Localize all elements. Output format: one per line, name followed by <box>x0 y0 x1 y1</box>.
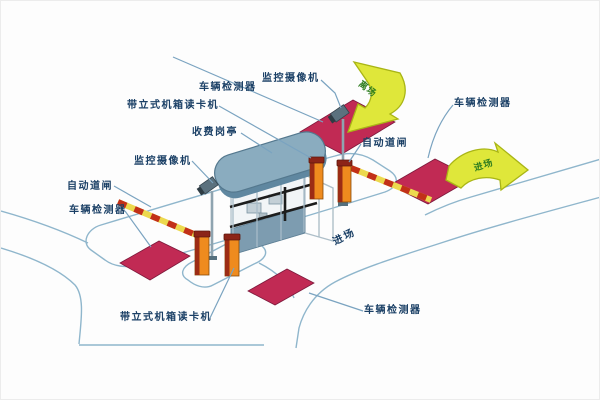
leader-card-reader-bottom <box>210 268 234 318</box>
label-camera-exit-lane: 监控摄像机 <box>262 73 320 85</box>
entry-direction-arrow: 进场 <box>446 143 528 190</box>
detector-pad-entry-left <box>120 241 190 280</box>
road-left-lower <box>1 248 82 344</box>
detector-pad-entry-approach <box>248 269 314 305</box>
machine-entry-card-reader <box>224 234 240 276</box>
leader-vehicle-detector-right <box>428 105 453 158</box>
diagram-canvas: 离场 进场 进场 车辆检测器 监控摄像机 带立式机箱读卡机 收费岗亭 监控摄像机… <box>0 0 600 400</box>
label-card-reader-exit-lane: 带立式机箱读卡机 <box>127 100 219 112</box>
label-vehicle-detector-exit-lane: 车辆检测器 <box>199 82 257 94</box>
label-camera-entry-lane: 监控摄像机 <box>134 156 192 168</box>
road-entry-curve <box>296 197 600 348</box>
label-vehicle-detector-entry-right: 车辆检测器 <box>454 98 512 110</box>
leader-vehicle-detector-bottom <box>309 293 363 311</box>
label-barrier-entry-lane: 自动道闸 <box>67 181 113 193</box>
parking-system-diagram: 离场 进场 进场 <box>1 1 600 400</box>
label-vehicle-detector-entry-left: 车辆检测器 <box>69 205 127 217</box>
label-toll-booth: 收费岗亭 <box>192 127 238 139</box>
label-card-reader-entry-lane: 带立式机箱读卡机 <box>120 312 212 324</box>
machine-exit-card-reader <box>309 157 324 199</box>
entry-road-text: 进场 <box>330 225 357 247</box>
leader-camera-top <box>321 80 341 108</box>
machine-entry-barrier <box>194 231 210 275</box>
exit-direction-arrow: 离场 <box>348 62 405 132</box>
machine-exit-barrier <box>337 160 352 202</box>
label-barrier-exit-lane: 自动道闸 <box>362 138 408 150</box>
label-vehicle-detector-approach: 车辆检测器 <box>364 305 422 317</box>
leader-camera-left <box>192 161 213 183</box>
